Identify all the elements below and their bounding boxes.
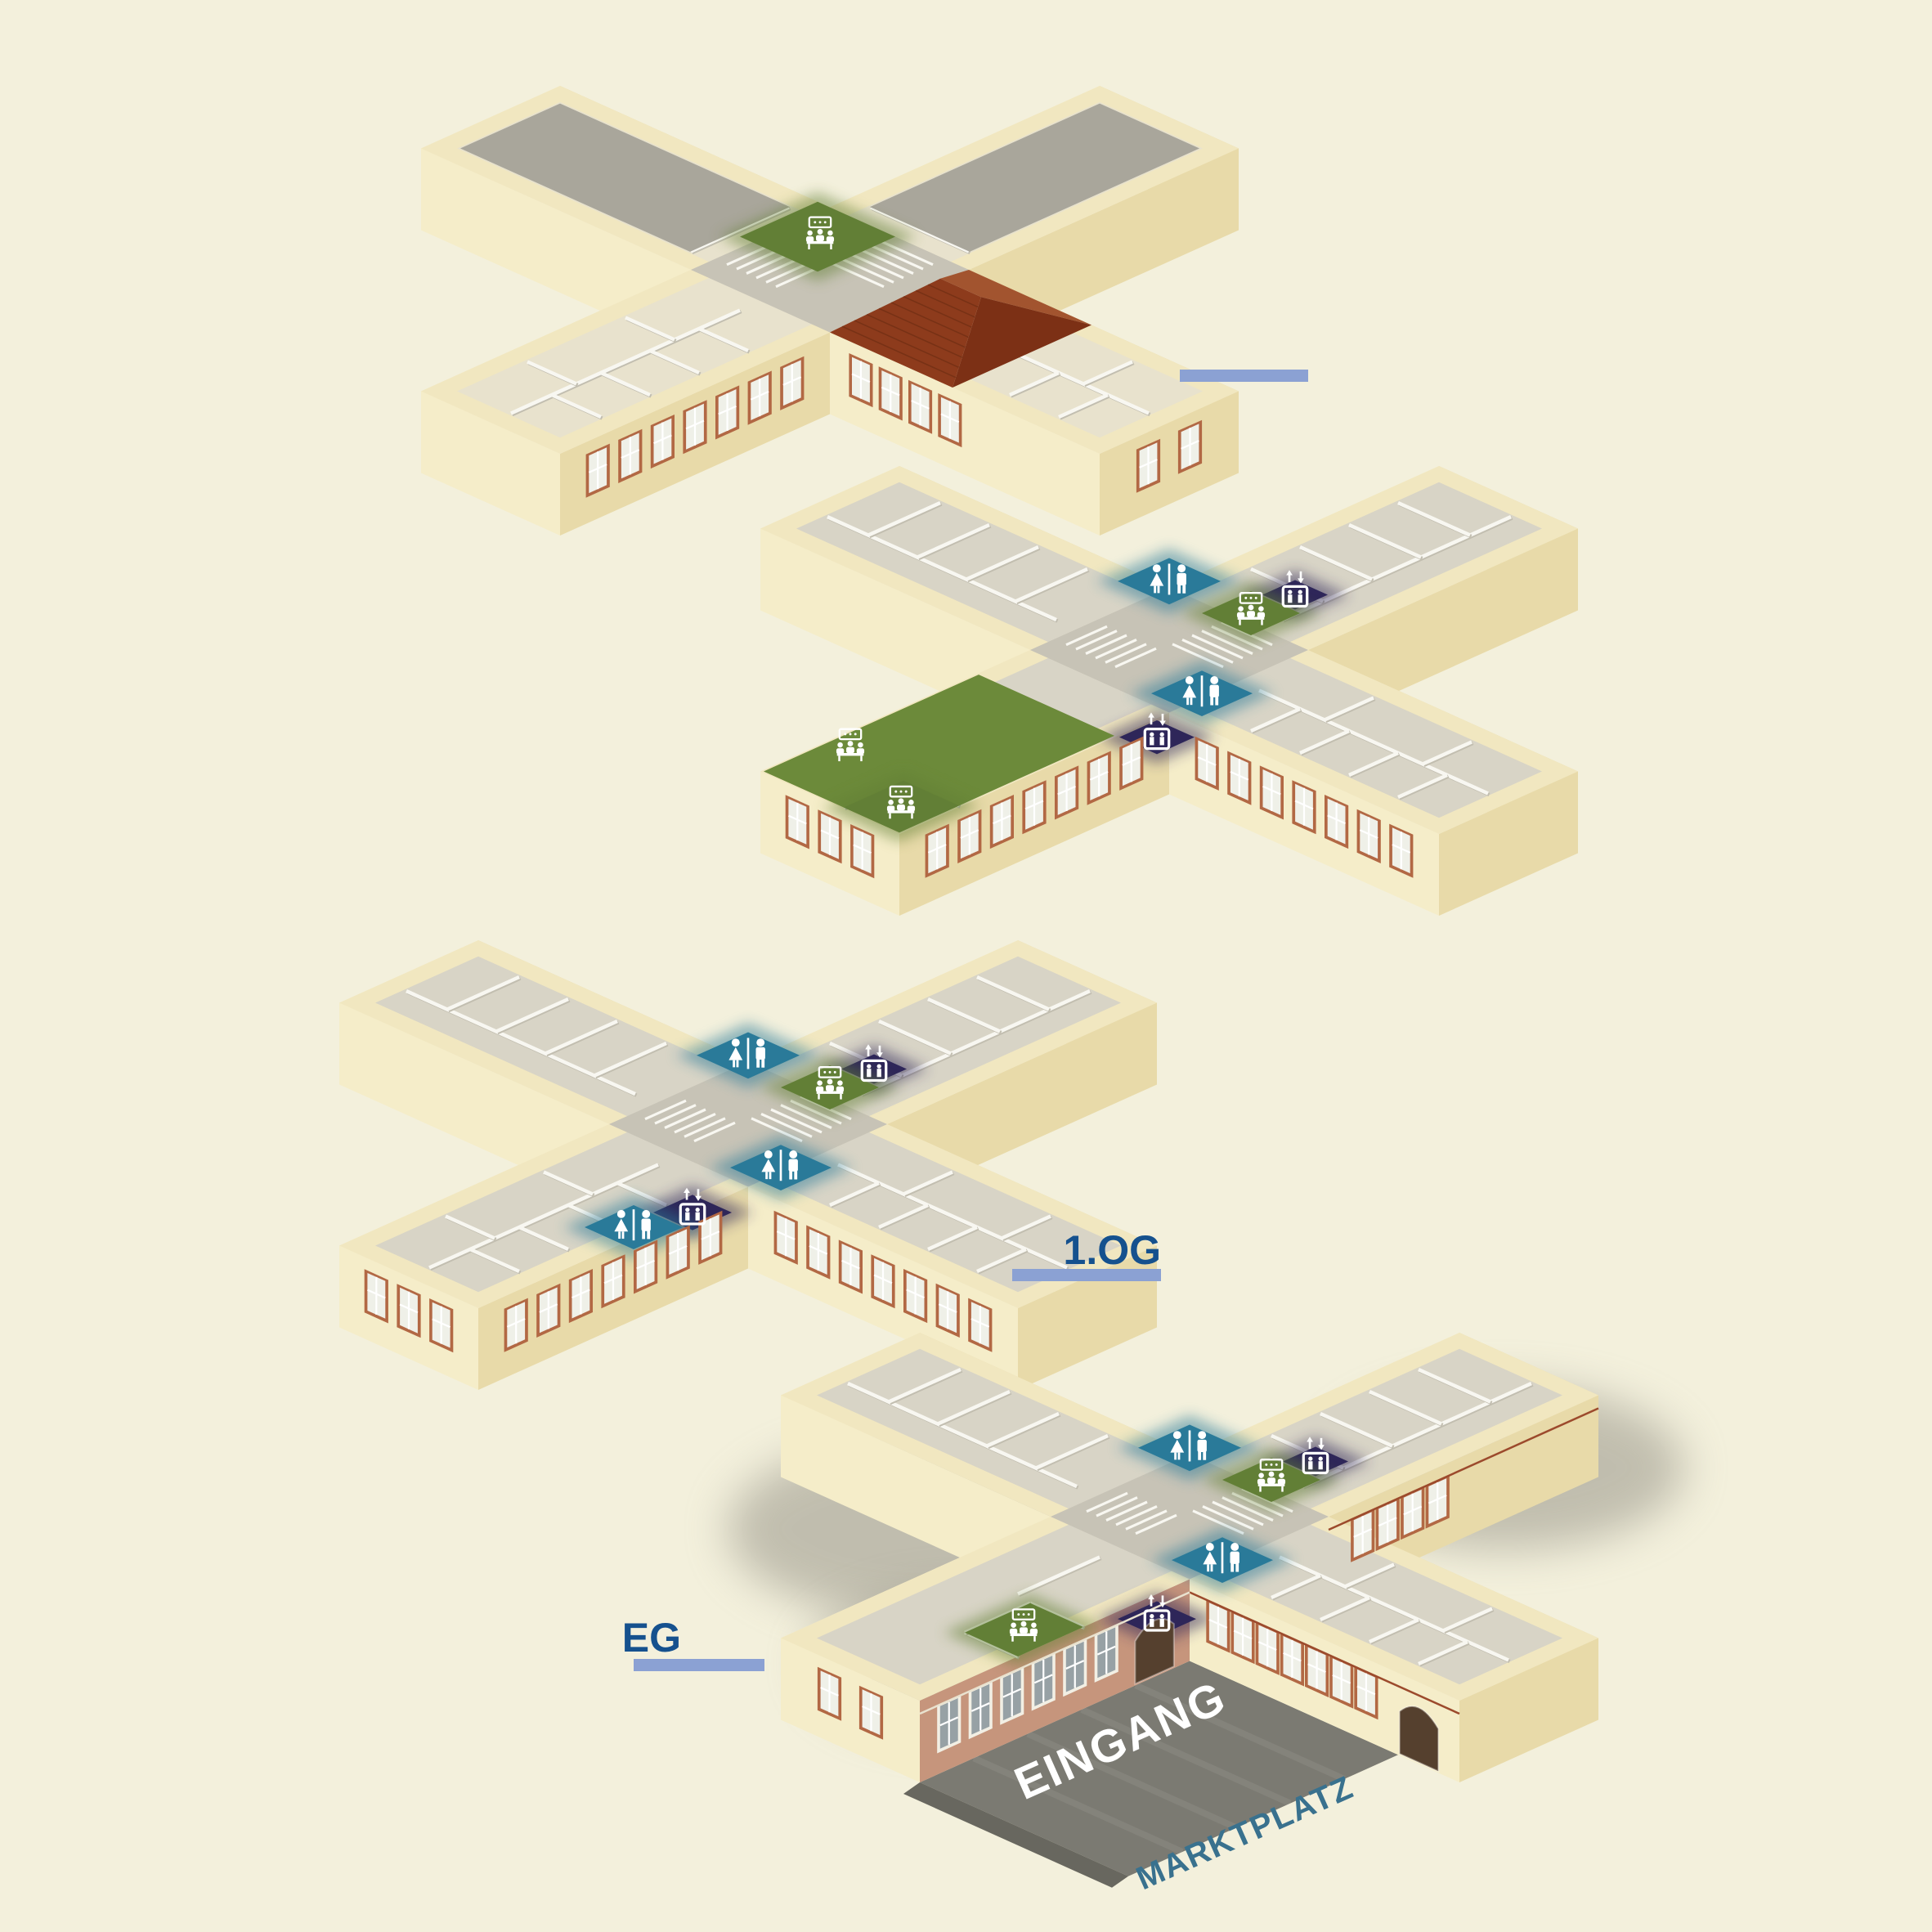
floor-label-eg: EG — [622, 1615, 681, 1661]
building-floorplan-diagram: 1.OG EG EINGANG MARKTPLATZ — [0, 0, 1932, 1932]
floor-marker-bar-eg — [634, 1659, 764, 1671]
floor-marker-bar-dach — [1180, 370, 1308, 382]
floors-group — [339, 86, 1684, 1888]
floor-label-1og: 1.OG — [1064, 1227, 1161, 1273]
floor-dach — [421, 86, 1308, 536]
floor-2og — [760, 466, 1578, 916]
floor-eg — [634, 1333, 1684, 1888]
floor-1og — [339, 940, 1161, 1390]
